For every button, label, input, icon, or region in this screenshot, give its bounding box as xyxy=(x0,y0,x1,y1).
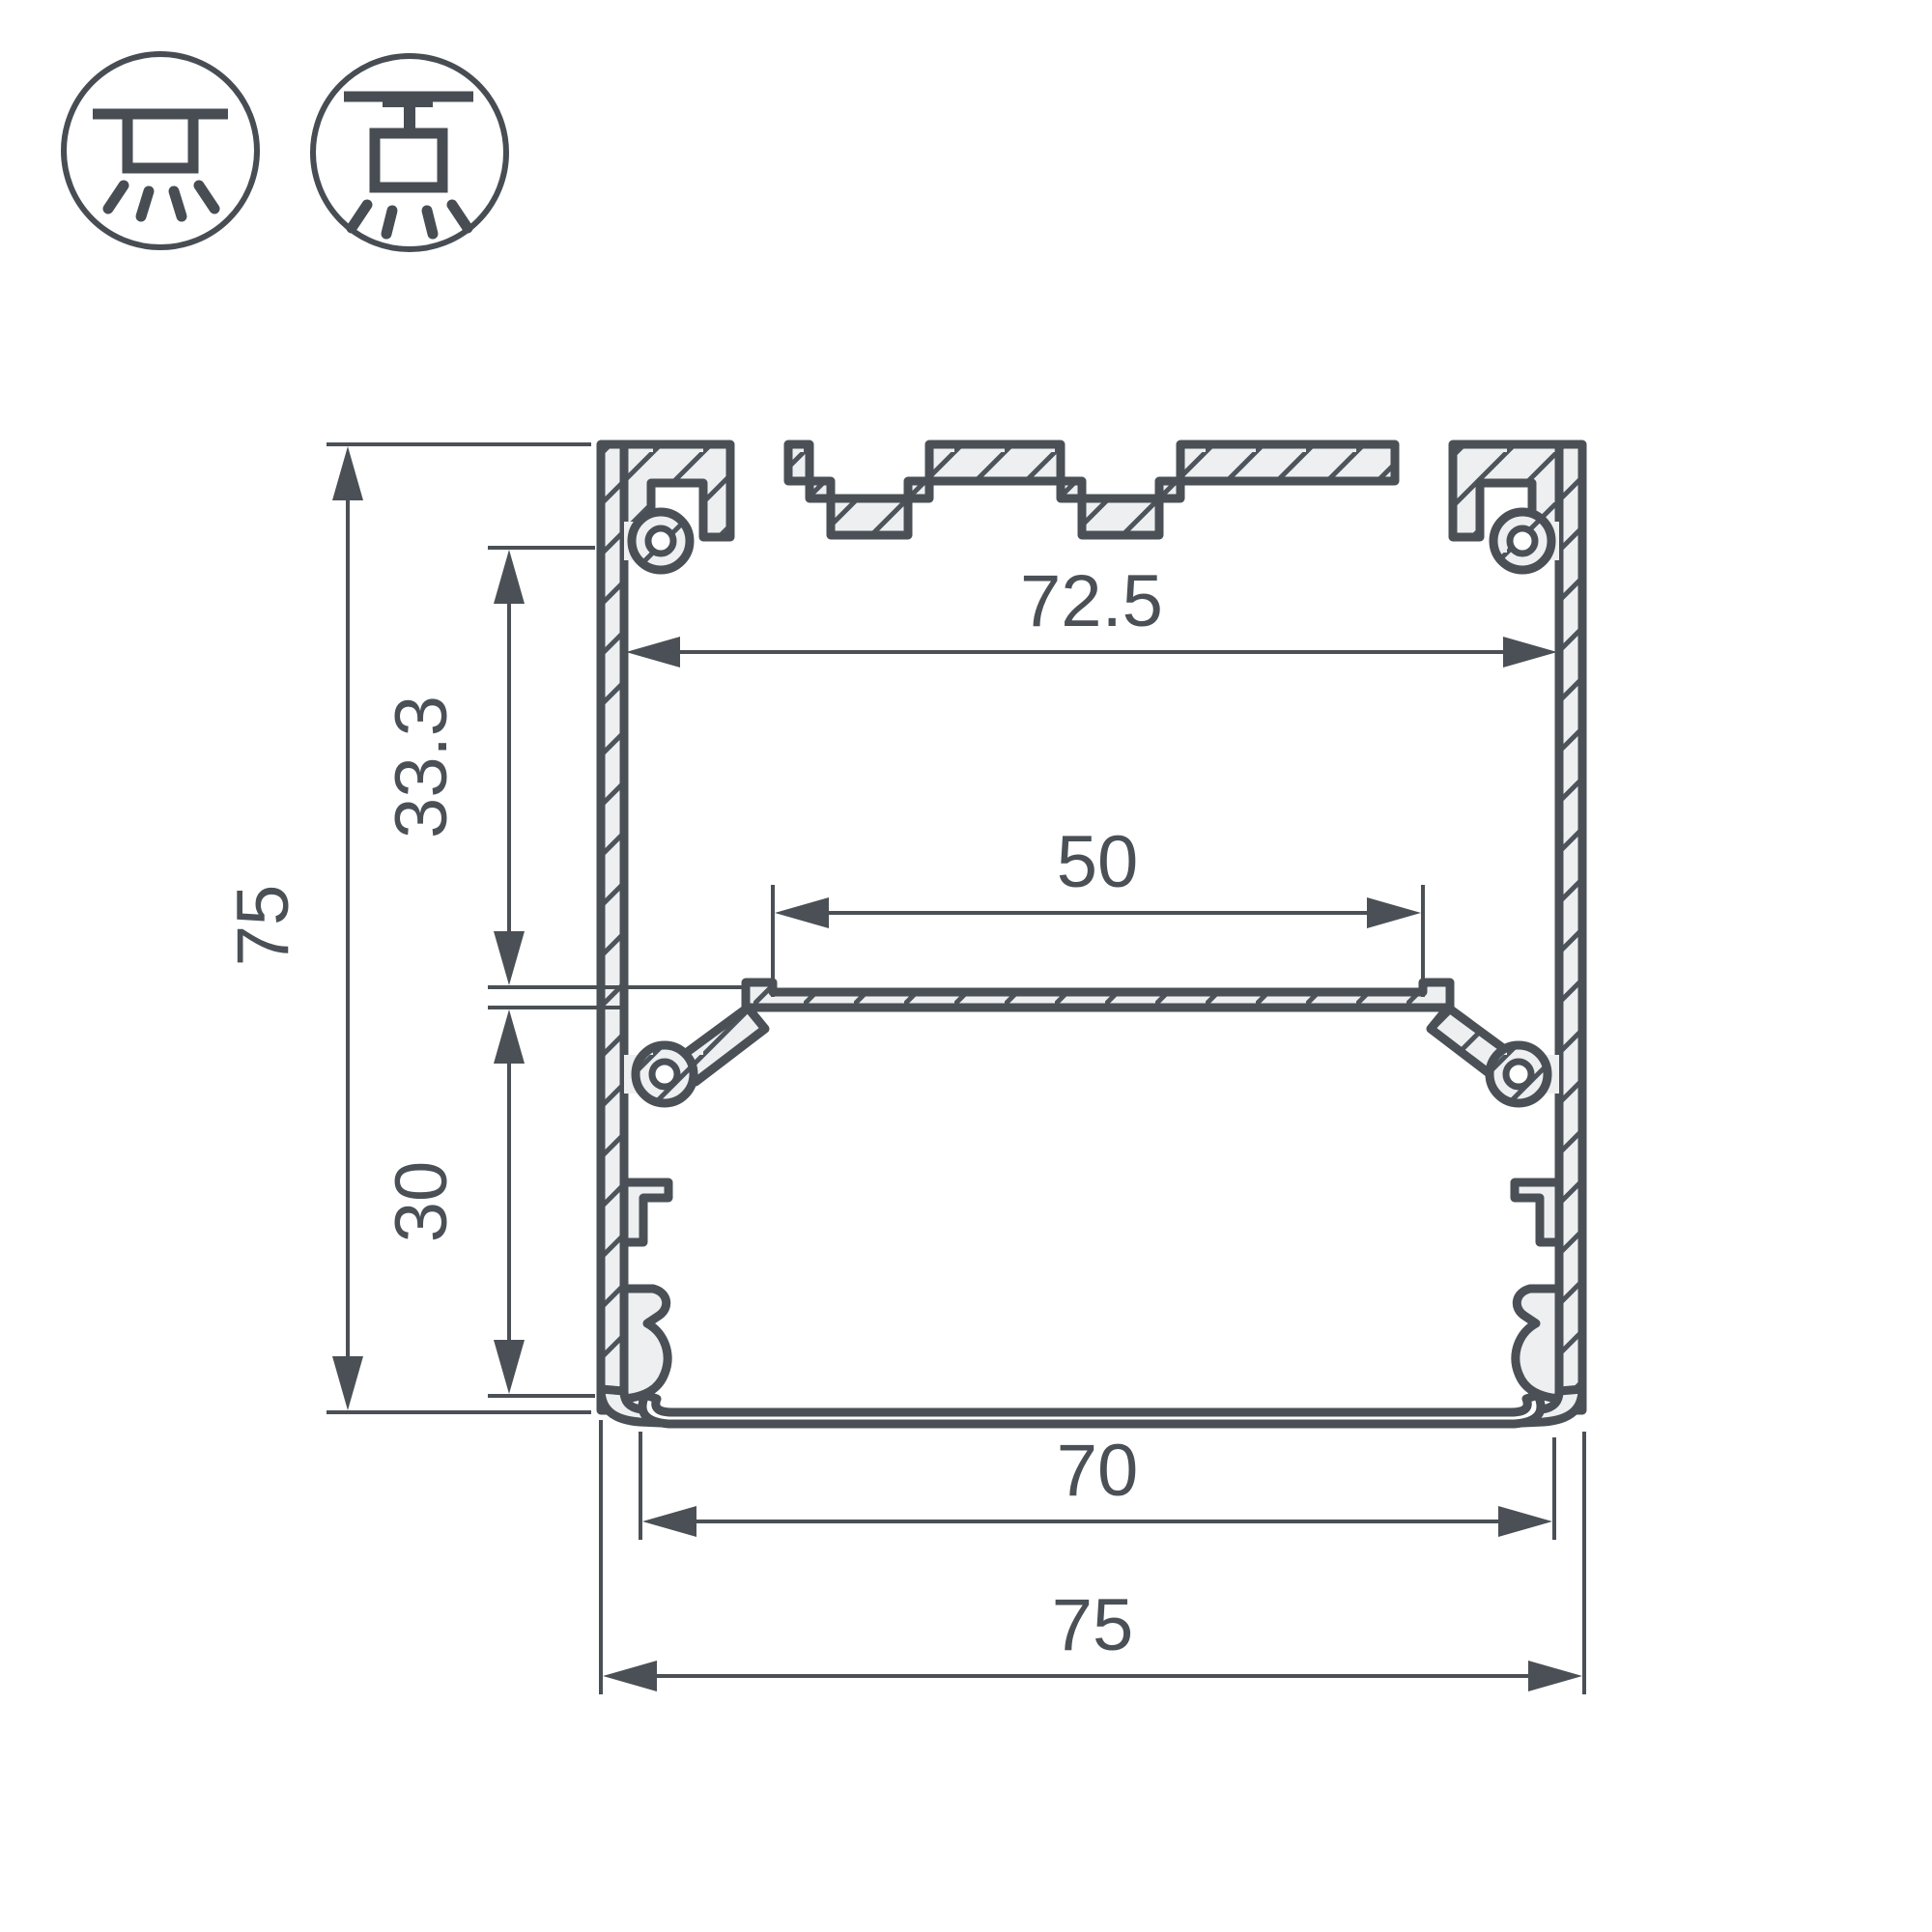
diffuser-lip-left xyxy=(624,1289,668,1399)
light-rays xyxy=(108,185,214,216)
arrow-right xyxy=(1503,637,1557,668)
dim-inner-width-bottom: 70 xyxy=(640,1430,1554,1540)
dim-label-50: 50 xyxy=(1057,821,1139,903)
dim-label-72-5: 72.5 xyxy=(1020,560,1163,642)
arrow-down xyxy=(494,931,525,985)
top-plate xyxy=(788,444,1395,535)
luminaire-box xyxy=(375,133,442,187)
arrow-down xyxy=(332,1356,363,1410)
screw-port-top-left xyxy=(648,528,673,554)
technical-drawing: 72.5 50 75 33.3 xyxy=(0,0,1932,1932)
dim-label-75-height: 75 xyxy=(222,885,304,967)
profile-left-wall xyxy=(601,444,624,1410)
pendant-mount-icon xyxy=(313,56,506,249)
screw-port-mid-left xyxy=(652,1062,677,1087)
luminaire-box xyxy=(128,114,193,168)
icon-circle xyxy=(64,54,257,247)
arrow-down xyxy=(494,1340,525,1394)
light-rays xyxy=(352,205,468,234)
diffuser-lip-right xyxy=(1516,1289,1559,1399)
dim-label-30: 30 xyxy=(381,1161,463,1243)
wall-hook-right xyxy=(1515,1182,1559,1242)
dim-led-strip-width: 50 xyxy=(773,821,1423,997)
dim-upper-height: 33.3 xyxy=(381,548,744,1008)
screw-port-top-right xyxy=(1510,528,1535,554)
dim-total-height: 75 xyxy=(222,444,591,1412)
dim-label-33-3: 33.3 xyxy=(381,696,463,838)
arrow-right xyxy=(1498,1506,1552,1537)
dim-label-70: 70 xyxy=(1057,1430,1139,1512)
diffuser-cover xyxy=(642,1395,1541,1424)
arrow-right xyxy=(1528,1661,1582,1691)
drawing-page: 72.5 50 75 33.3 xyxy=(0,0,1932,1932)
dimensions: 72.5 50 75 33.3 xyxy=(222,444,1584,1694)
dim-label-75-width: 75 xyxy=(1052,1584,1134,1666)
arrow-left xyxy=(775,897,829,928)
arrow-left xyxy=(642,1506,696,1537)
surface-mount-icon xyxy=(64,54,257,247)
led-shelf xyxy=(746,982,1450,1008)
profile-right-wall xyxy=(1559,444,1582,1410)
dim-inner-width-top: 72.5 xyxy=(626,560,1557,668)
arrow-right xyxy=(1367,897,1421,928)
dim-lower-height: 30 xyxy=(381,1009,595,1396)
arrow-left xyxy=(626,637,680,668)
arrow-up xyxy=(494,550,525,604)
icon-circle xyxy=(313,56,506,249)
screw-port-mid-right xyxy=(1506,1062,1531,1087)
wall-hook-left xyxy=(624,1182,668,1242)
arrow-up xyxy=(332,446,363,500)
arrow-left xyxy=(603,1661,657,1691)
arrow-up xyxy=(494,1009,525,1064)
